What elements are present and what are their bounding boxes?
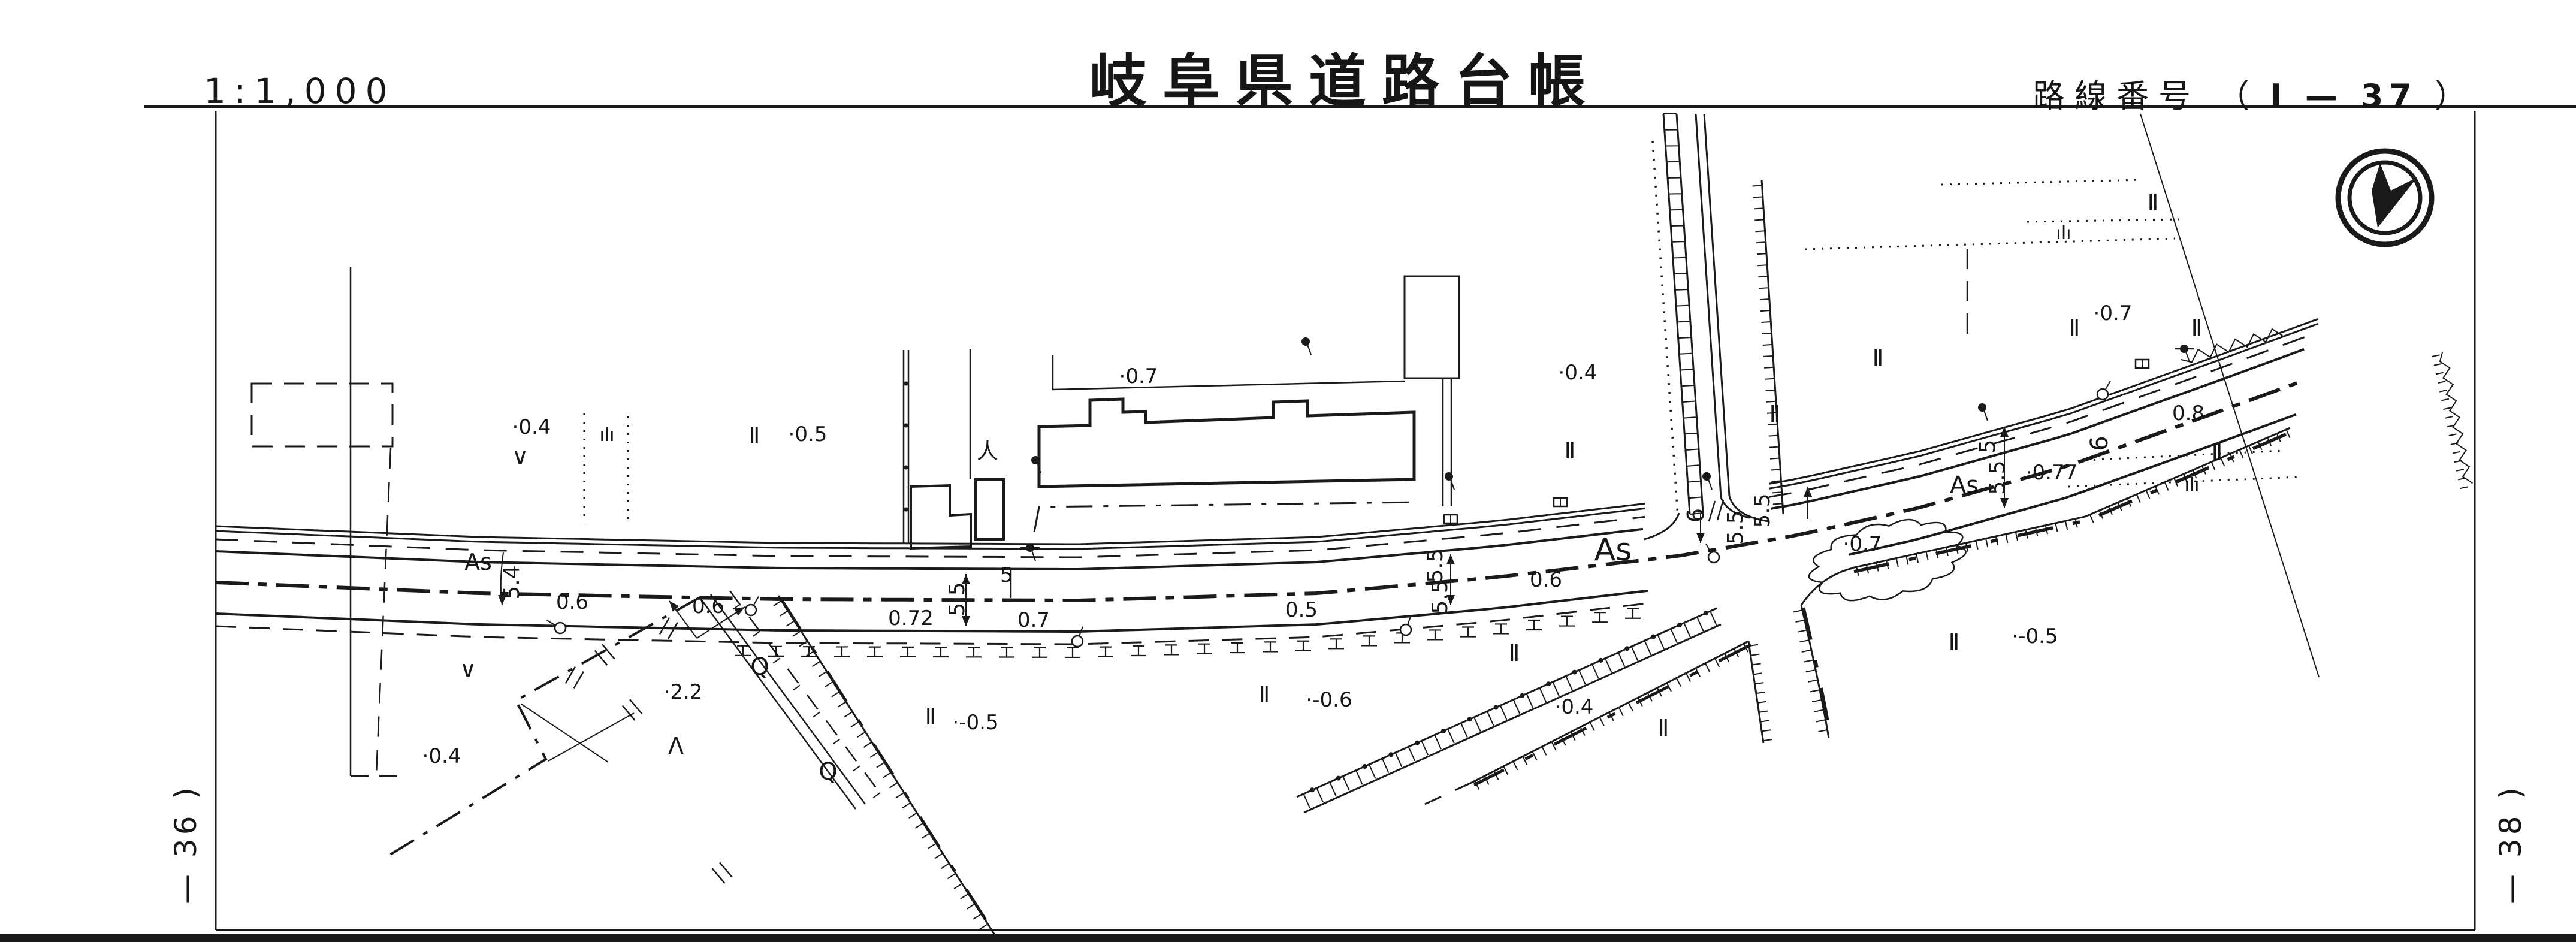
main-road [216, 186, 2468, 940]
buildings [911, 276, 1459, 548]
sheet-number-right: — 38 ) [2493, 808, 2528, 904]
map-drawing [0, 0, 2576, 942]
parcel-lines [252, 114, 2472, 776]
north-arrow-icon [2338, 151, 2432, 244]
farmstead-boundary [388, 597, 732, 883]
map-scale: 1:1,000 [204, 71, 395, 111]
route-number-label: 路線番号 [2033, 70, 2200, 117]
route-paren-close: ） [2435, 70, 2471, 117]
route-number-value: Ⅰ — 37 [2270, 77, 2418, 115]
sheet-number-left: — 36 ) [168, 808, 203, 904]
route-number: 路線番号 （ Ⅰ — 37 ） [2033, 70, 2471, 117]
sheet-title: 岐阜県道路台帳 [1089, 35, 1601, 118]
southwest-branch-road [1297, 608, 1763, 813]
route-paren-open: （ [2217, 70, 2253, 117]
sheet-frame [0, 107, 2576, 942]
road-ledger-sheet: 1:1,000 岐阜県道路台帳 路線番号 （ Ⅰ — 37 ） — 36 ) —… [0, 0, 2576, 942]
north-south-road [1644, 114, 1783, 539]
